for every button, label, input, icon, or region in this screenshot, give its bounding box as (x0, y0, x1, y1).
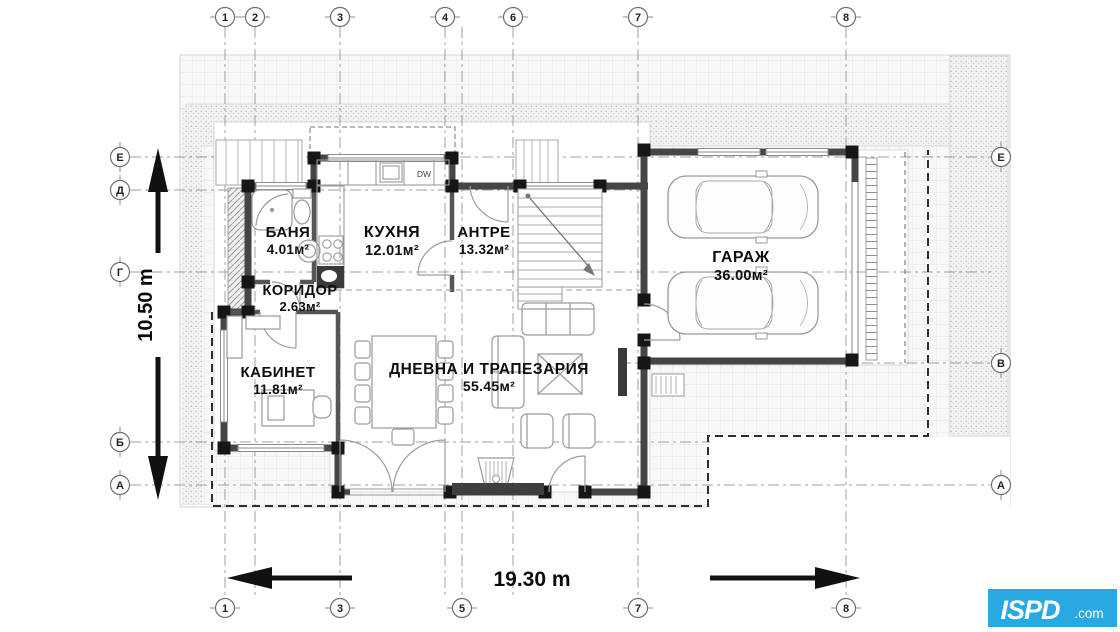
cabinet (246, 316, 280, 329)
armchair (563, 414, 595, 448)
grid-marker: А (111, 470, 130, 500)
svg-text:2.63м²: 2.63м² (279, 299, 320, 314)
svg-text:Е: Е (997, 152, 1004, 164)
grid-marker: 7 (623, 8, 653, 27)
svg-text:11.81м²: 11.81м² (253, 382, 303, 397)
svg-text:ГАРАЖ: ГАРАЖ (712, 249, 769, 266)
svg-text:ДНЕВНА И ТРАПЕЗАРИЯ: ДНЕВНА И ТРАПЕЗАРИЯ (389, 361, 589, 378)
svg-text:55.45м²: 55.45м² (463, 378, 515, 394)
armchair (521, 414, 553, 448)
svg-text:1: 1 (222, 603, 228, 615)
floor-plan-drawing: DW (0, 0, 1120, 632)
grid-marker: 5 (447, 599, 477, 618)
svg-text:5: 5 (459, 603, 465, 615)
light-well (652, 374, 684, 396)
svg-text:В: В (997, 358, 1005, 370)
dining-table (372, 336, 436, 428)
svg-text:А: А (997, 480, 1005, 492)
svg-text:КУХНЯ: КУХНЯ (364, 224, 420, 241)
svg-text:Б: Б (116, 437, 124, 449)
svg-text:13.32м²: 13.32м² (459, 242, 510, 257)
grid-marker: Е (111, 142, 130, 172)
svg-text:4.01м²: 4.01м² (267, 242, 310, 257)
car-icon (668, 171, 818, 243)
grid-marker: 3 (325, 599, 355, 618)
svg-text:8: 8 (843, 12, 849, 24)
bookcase (227, 316, 242, 358)
logo-text: ISPD (1000, 595, 1060, 625)
grid-marker: Б (111, 427, 130, 457)
svg-text:БАНЯ: БАНЯ (266, 224, 311, 241)
sofa-three-seat (522, 303, 594, 335)
dishwasher-label: DW (417, 169, 431, 179)
room-label-banya: БАНЯ 4.01м² (266, 224, 311, 257)
svg-text:6: 6 (510, 12, 516, 24)
svg-text:Д: Д (116, 185, 124, 197)
svg-text:А: А (116, 480, 124, 492)
grid-marker: 2 (240, 8, 270, 27)
grid-marker: 1 (210, 8, 240, 27)
svg-text:7: 7 (635, 603, 641, 615)
svg-text:1: 1 (222, 12, 228, 24)
vertical-dimension-arrow: 10.50 m (135, 148, 168, 500)
brand-logo[interactable]: ISPD .com (988, 589, 1117, 627)
fence-strip (866, 158, 877, 360)
tv-panel (618, 348, 627, 396)
grid-markers-bottom: 1 3 5 7 8 (210, 599, 861, 618)
grid-markers-top: 1 2 3 4 6 7 8 (210, 8, 861, 27)
svg-text:8: 8 (843, 603, 849, 615)
height-dimension-label: 10.50 m (135, 268, 157, 341)
svg-text:Г: Г (117, 267, 124, 279)
hatched-wall-strip (228, 188, 246, 310)
grid-marker: 8 (831, 599, 861, 618)
svg-text:2: 2 (252, 12, 258, 24)
svg-text:4: 4 (442, 12, 449, 24)
svg-text:12.01м²: 12.01м² (365, 243, 419, 259)
width-dimension-label: 19.30 m (493, 568, 570, 591)
horizontal-dimension-arrows: 19.30 m (227, 567, 860, 591)
desk-chair (313, 396, 331, 418)
toilet-tank (293, 189, 311, 198)
svg-text:3: 3 (337, 12, 343, 24)
bench (452, 483, 544, 495)
logo-suffix: .com (1074, 606, 1103, 621)
floor-plan-page: DW (0, 0, 1120, 632)
grid-marker: Г (111, 257, 130, 287)
grid-marker: Д (111, 175, 130, 205)
toilet (294, 200, 310, 224)
svg-text:36.00м²: 36.00м² (714, 268, 768, 284)
svg-text:КАБИНЕТ: КАБИНЕТ (240, 364, 315, 381)
grid-marker: 3 (325, 8, 355, 27)
grid-marker: 1 (210, 599, 240, 618)
grid-marker: 7 (623, 599, 653, 618)
grid-marker: 6 (498, 8, 528, 27)
svg-text:АНТРЕ: АНТРЕ (457, 224, 510, 241)
svg-text:3: 3 (337, 603, 343, 615)
grid-markers-left: Е Д Г Б А (111, 142, 130, 500)
svg-text:КОРИДОР: КОРИДОР (262, 283, 337, 299)
svg-text:7: 7 (635, 12, 641, 24)
grid-marker: 4 (430, 8, 460, 27)
svg-text:Е: Е (116, 152, 123, 164)
room-label-antre: АНТРЕ 13.32м² (457, 224, 510, 257)
grid-marker: 8 (831, 8, 861, 27)
